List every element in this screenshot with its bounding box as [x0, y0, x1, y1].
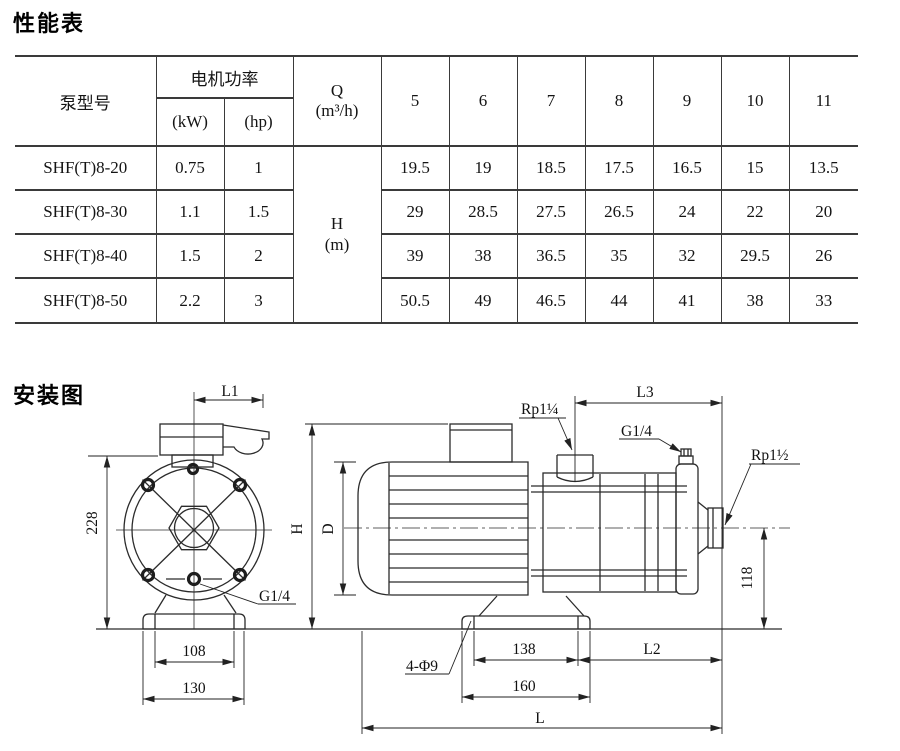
- cell-head: 46.5: [517, 278, 585, 323]
- cell-kw: 0.75: [156, 146, 224, 190]
- cell-head: 49: [449, 278, 517, 323]
- dim-label-rp1-half: Rp1½: [751, 447, 789, 464]
- cell-head: 19: [449, 146, 517, 190]
- leader-g14-side: [659, 439, 681, 452]
- cell-head: 28.5: [449, 190, 517, 234]
- installation-diagram: L1 228 108 130 G1/4 H D Rp1¼ G1/4 Rp1½ L…: [0, 375, 900, 751]
- cell-hp: 3: [224, 278, 293, 323]
- q-symbol: Q: [294, 81, 381, 101]
- cell-head: 19.5: [381, 146, 449, 190]
- table-row: SHF(T)8-20 0.75 1 H (m) 19.5 19 18.5 17.…: [15, 146, 858, 190]
- cell-kw: 2.2: [156, 278, 224, 323]
- discharge-housing: [160, 424, 269, 467]
- stage-casing: [543, 473, 676, 592]
- dim-label-l: L: [535, 710, 544, 727]
- leader-rp1-quarter: [558, 418, 572, 450]
- cell-head: 50.5: [381, 278, 449, 323]
- cell-head: 27.5: [517, 190, 585, 234]
- cell-head: 41: [653, 278, 721, 323]
- cell-kw: 1.5: [156, 234, 224, 278]
- vent-plug: [679, 449, 693, 464]
- header-pump-model: 泵型号: [15, 56, 156, 146]
- cell-head: 35: [585, 234, 653, 278]
- h-unit: (m): [294, 235, 381, 255]
- cell-head: 33: [789, 278, 858, 323]
- side-pedestal: [462, 596, 590, 629]
- performance-table: 泵型号 电机功率 Q (m³/h) 5 6 7 8 9 10 11 (kW) (…: [15, 55, 858, 324]
- cell-head: 22: [721, 190, 789, 234]
- dim-label-holes: 4-Φ9: [406, 658, 438, 675]
- cell-hp: 1.5: [224, 190, 293, 234]
- header-flow-value: 9: [653, 56, 721, 146]
- cell-head: 38: [721, 278, 789, 323]
- cell-head: 17.5: [585, 146, 653, 190]
- cell-head: 39: [381, 234, 449, 278]
- dim-label-rp1-quarter: Rp1¼: [521, 401, 558, 418]
- dim-label-130: 130: [182, 680, 206, 697]
- leader-rp1-half: [725, 464, 751, 525]
- dim-label-118: 118: [739, 566, 756, 589]
- terminal-box: [450, 424, 512, 462]
- tie-rods: [531, 486, 687, 576]
- dim-label-160: 160: [512, 678, 536, 695]
- cell-head: 44: [585, 278, 653, 323]
- discharge-flange-plate: [676, 464, 698, 594]
- dim-label-l3: L3: [636, 384, 653, 401]
- table-row: SHF(T)8-50 2.2 3 50.5 49 46.5 44 41 38 3…: [15, 278, 858, 323]
- cell-head: 29: [381, 190, 449, 234]
- table-row: SHF(T)8-30 1.1 1.5 29 28.5 27.5 26.5 24 …: [15, 190, 858, 234]
- dim-label-g14-front: G1/4: [259, 588, 290, 605]
- cell-head: 38: [449, 234, 517, 278]
- cell-model: SHF(T)8-30: [15, 190, 156, 234]
- cell-hp: 1: [224, 146, 293, 190]
- datasheet-page: 性能表 泵型号 电机功率 Q (m³/h) 5 6 7 8 9 10 11 (k…: [0, 0, 900, 751]
- cell-head: 18.5: [517, 146, 585, 190]
- h-symbol: H: [294, 214, 381, 234]
- header-flow-value: 11: [789, 56, 858, 146]
- cell-head: 24: [653, 190, 721, 234]
- cell-head: 36.5: [517, 234, 585, 278]
- header-motor-power: 电机功率: [156, 56, 293, 98]
- q-unit: (m³/h): [294, 101, 381, 121]
- header-flow-value: 5: [381, 56, 449, 146]
- dim-label-l2: L2: [643, 641, 660, 658]
- leader-g14-front: [200, 584, 258, 604]
- cell-head: 13.5: [789, 146, 858, 190]
- header-hp: (hp): [224, 98, 293, 146]
- cell-head: 26.5: [585, 190, 653, 234]
- cell-model: SHF(T)8-50: [15, 278, 156, 323]
- cell-head: 20: [789, 190, 858, 234]
- dim-label-138: 138: [512, 641, 536, 658]
- dim-label-h: H: [289, 523, 306, 534]
- dim-label-g14-side: G1/4: [621, 423, 652, 440]
- motor-fins: [389, 476, 528, 582]
- cell-head-label: H (m): [293, 146, 381, 323]
- header-kw: (kW): [156, 98, 224, 146]
- cell-head: 16.5: [653, 146, 721, 190]
- cell-hp: 2: [224, 234, 293, 278]
- header-flow-value: 6: [449, 56, 517, 146]
- table-header-row-1: 泵型号 电机功率 Q (m³/h) 5 6 7 8 9 10 11: [15, 56, 858, 98]
- header-flow-value: 7: [517, 56, 585, 146]
- cell-model: SHF(T)8-40: [15, 234, 156, 278]
- header-flow-value: 10: [721, 56, 789, 146]
- dim-label-l1: L1: [221, 383, 238, 400]
- cell-model: SHF(T)8-20: [15, 146, 156, 190]
- header-flow-q: Q (m³/h): [293, 56, 381, 146]
- cell-head: 15: [721, 146, 789, 190]
- cell-kw: 1.1: [156, 190, 224, 234]
- performance-table-title: 性能表: [13, 6, 85, 38]
- side-base-plate: [462, 616, 590, 629]
- discharge-elbow-spout: [223, 425, 269, 454]
- table-row: SHF(T)8-40 1.5 2 39 38 36.5 35 32 29.5 2…: [15, 234, 858, 278]
- dim-label-108: 108: [182, 643, 206, 660]
- cell-head: 26: [789, 234, 858, 278]
- dimension-labels: L1 228 108 130 G1/4 H D Rp1¼ G1/4 Rp1½ L…: [84, 383, 789, 727]
- cell-head: 29.5: [721, 234, 789, 278]
- cell-head: 32: [653, 234, 721, 278]
- header-flow-value: 8: [585, 56, 653, 146]
- dim-label-228: 228: [84, 511, 101, 535]
- pump-front-view: [116, 392, 272, 629]
- dim-label-d: D: [320, 523, 337, 534]
- motor-body: [358, 462, 528, 595]
